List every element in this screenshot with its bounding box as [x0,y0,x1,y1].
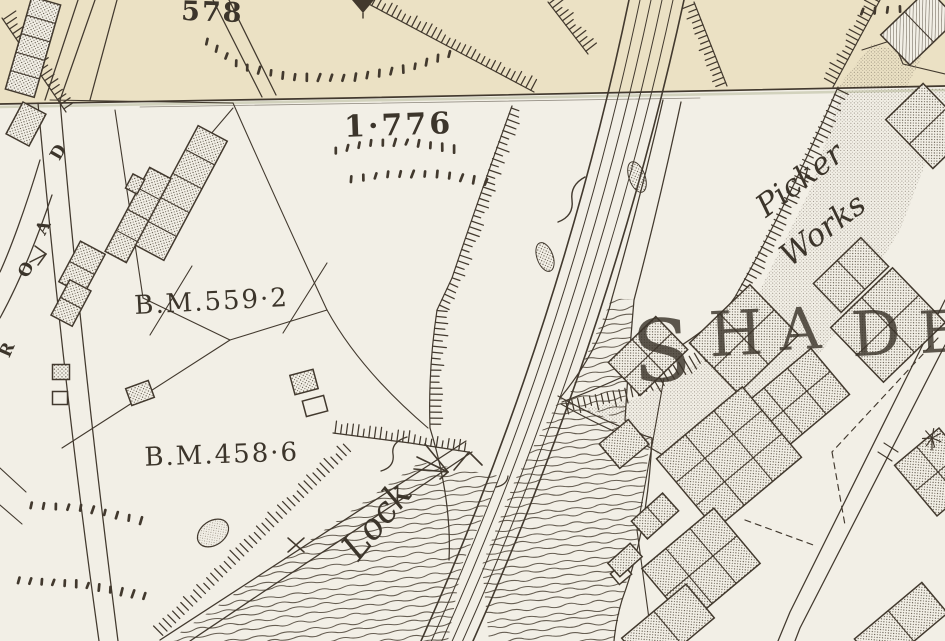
tree-dot [438,55,439,62]
tree-dot [18,578,20,584]
tree-dot [400,171,401,176]
tree-dot [271,70,272,75]
tree-dot [116,512,118,518]
tree-dot [129,515,130,521]
plot-number-label: 578 [181,0,244,29]
tree-dot [99,584,100,590]
tree-dot [67,505,69,510]
tree-dot [143,593,145,599]
tree-dot [388,172,389,177]
tree-dot [29,578,31,583]
place-name-letter: S [629,301,693,404]
tree-dot [330,75,332,81]
tree-dot [226,54,228,59]
tree-dot [140,517,142,524]
ordnance-survey-map: 5781·776B.M.559·2B.M.458·6LockPickerWork… [0,0,945,641]
tree-dot [104,510,105,515]
tree-dot [391,68,393,74]
tree-dot [425,172,426,177]
tree-dot [437,171,438,177]
map-canvas: 5781·776B.M.559·2B.M.458·6LockPickerWork… [0,0,945,641]
hachure-tick [432,358,440,359]
place-name-letter: H [707,296,765,372]
benchmark-label-458: B.M.458·6 [144,437,300,472]
tree-dot [861,9,863,14]
tree-dot [121,588,123,595]
tree-dot [283,72,284,78]
tree-dot [80,505,81,511]
tree-dot [87,583,89,588]
place-name-letter: D [849,296,902,372]
tree-dot [206,39,207,44]
tree-dot [367,72,368,78]
place-name-letter: E [917,297,945,367]
tree-dot [355,74,356,81]
tree-dot [449,51,450,57]
tree-dot [31,503,32,509]
building [53,392,68,405]
tree-dot [52,580,54,585]
tree-dot [449,173,450,179]
tree-dot [342,75,344,81]
tree-dot [216,46,217,52]
tree-branch [923,438,933,439]
tree-dot [473,176,474,183]
tree-dot [875,8,876,14]
tree-dot [347,145,348,151]
place-name-letter: A [776,294,823,364]
tree-dot [887,7,888,12]
plot-area-label: 1·776 [344,106,454,145]
tree-dot [43,503,44,509]
tree-dot [294,74,295,80]
tree-dot [258,67,260,74]
tree-dot [375,173,377,178]
tree-dot [426,59,427,65]
hachure-tick [434,340,442,341]
tree-dot [415,64,416,69]
building [53,365,70,380]
